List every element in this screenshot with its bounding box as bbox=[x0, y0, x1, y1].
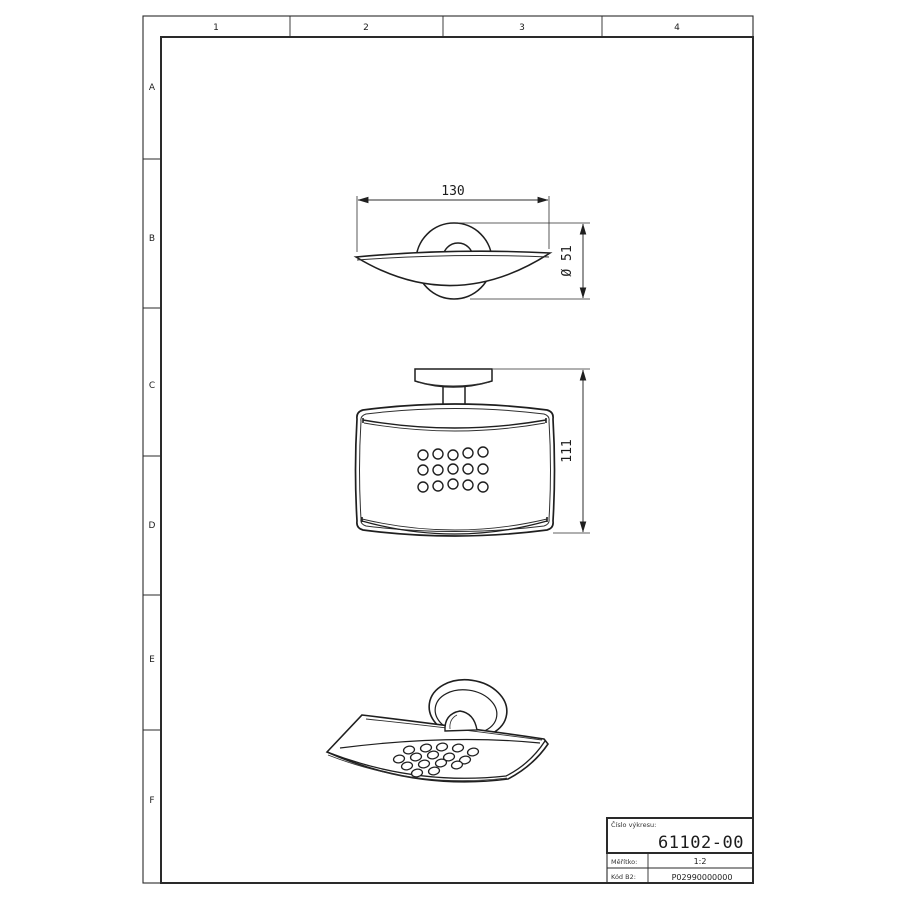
row-label-c: C bbox=[149, 381, 155, 391]
drain-hole bbox=[448, 464, 458, 474]
drain-hole bbox=[448, 479, 458, 489]
row-label-f: F bbox=[149, 796, 154, 806]
drain-hole bbox=[478, 464, 488, 474]
drain-hole bbox=[448, 450, 458, 460]
row-label-d: D bbox=[149, 521, 156, 531]
column-label-2: 2 bbox=[363, 23, 369, 33]
drain-hole bbox=[463, 448, 473, 458]
isometric-view bbox=[327, 675, 548, 782]
dimension-value: Ø 51 bbox=[560, 245, 575, 276]
column-label-3: 3 bbox=[519, 23, 525, 33]
drain-hole bbox=[418, 450, 428, 460]
scale-value: 1:2 bbox=[694, 857, 707, 866]
drain-hole bbox=[463, 464, 473, 474]
drain-hole bbox=[433, 449, 443, 459]
front-view: 111 bbox=[356, 369, 591, 536]
code-label: Kód B2: bbox=[611, 873, 636, 881]
drain-hole bbox=[418, 465, 428, 475]
drain-hole bbox=[433, 481, 443, 491]
code-value: P02990000000 bbox=[672, 873, 733, 882]
top-view: 130 Ø 51 bbox=[356, 184, 590, 299]
technical-drawing-canvas: 1 2 3 4 A B C D E F 130 Ø 51 bbox=[0, 0, 900, 900]
drawing-number-label: Číslo výkresu: bbox=[611, 820, 656, 829]
drain-hole bbox=[478, 447, 488, 457]
drawing-number-value: 61102-00 bbox=[658, 833, 744, 853]
scale-label: Měřítko: bbox=[611, 858, 637, 866]
row-label-a: A bbox=[149, 83, 156, 93]
drain-hole bbox=[418, 482, 428, 492]
drain-hole bbox=[463, 480, 473, 490]
dimension-value: 111 bbox=[560, 439, 575, 462]
row-label-b: B bbox=[149, 234, 155, 244]
row-label-e: E bbox=[149, 655, 155, 665]
drain-hole bbox=[478, 482, 488, 492]
column-label-4: 4 bbox=[674, 23, 680, 33]
drain-hole bbox=[433, 465, 443, 475]
dimension-value: 130 bbox=[441, 184, 464, 199]
dimension-130: 130 bbox=[357, 184, 549, 252]
mount-plate bbox=[415, 369, 492, 387]
title-block: Číslo výkresu: 61102-00 Měřítko: 1:2 Kód… bbox=[607, 818, 753, 883]
column-label-1: 1 bbox=[213, 23, 219, 33]
